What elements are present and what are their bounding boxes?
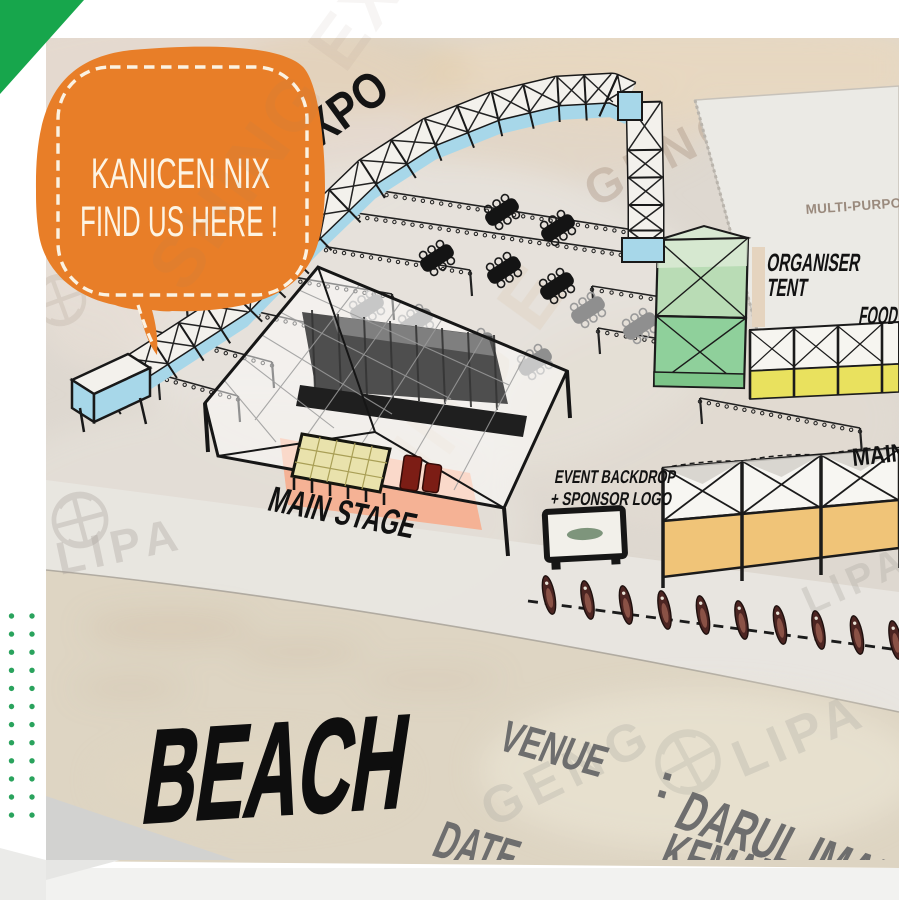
- svg-text:FOOD C: FOOD C: [857, 302, 899, 330]
- svg-text:ORGANISER: ORGANISER: [765, 249, 863, 277]
- svg-text:+ SPONSOR LOGO: + SPONSOR LOGO: [549, 488, 674, 509]
- svg-text:BEACH: BEACH: [135, 687, 419, 852]
- svg-text:TENT: TENT: [765, 274, 810, 302]
- svg-text:EVENT BACKDROP: EVENT BACKDROP: [553, 466, 678, 487]
